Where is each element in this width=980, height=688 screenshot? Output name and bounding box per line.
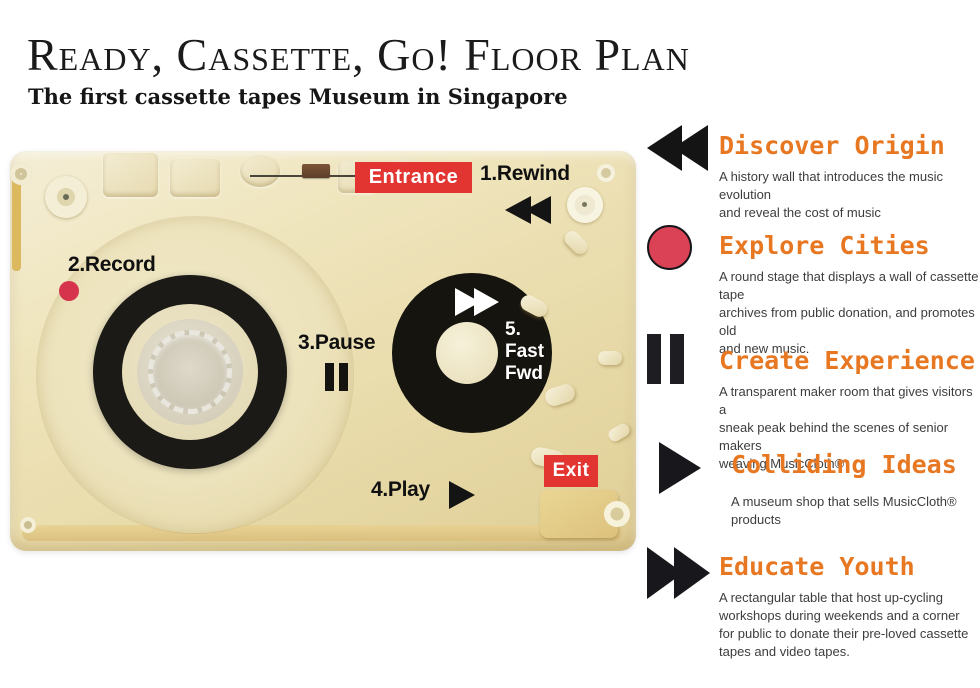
legend-item-title: Create Experience: [719, 346, 980, 375]
right-reel-hole: [436, 322, 498, 384]
legend-item-desc-line: A museum shop that sells MusicCloth® pro…: [731, 493, 980, 529]
legend-item-desc-line: tapes and video tapes.: [719, 643, 980, 661]
legend-item-desc-line: A rectangular table that host up-cycling: [719, 589, 980, 607]
record-label: 2.Record: [68, 253, 155, 277]
post-top-right-pin: [582, 202, 587, 207]
legend-item-desc-line: A round stage that displays a wall of ca…: [719, 268, 980, 304]
fast-forward-label-line1: Fast: [505, 341, 544, 363]
rewind-label: 1.Rewind: [480, 162, 570, 186]
pause-icon: [325, 363, 348, 391]
rewind-icon: [505, 196, 551, 224]
fast-forward-icon: [645, 547, 719, 661]
legend-item-discover-origin: Discover Origin A history wall that intr…: [645, 125, 980, 222]
cylinder-bottom-right: [604, 501, 630, 527]
poster: Ready, Cassette, Go! Floor Plan The firs…: [0, 0, 980, 688]
legend-item-colliding-ideas: Colliding Ideas A museum shop that sells…: [645, 442, 980, 529]
left-reel-hub-glass: [148, 330, 232, 414]
fast-forward-triangle: [674, 547, 710, 599]
left-reel: [93, 275, 287, 469]
rewind-icon: [645, 125, 719, 222]
legend-item-desc: A history wall that introduces the music…: [719, 168, 980, 222]
legend-item-desc: A rectangular table that host up-cycling…: [719, 589, 980, 661]
play-triangle: [659, 442, 701, 494]
molding-tab: [103, 153, 158, 197]
page-subtitle: The first cassette tapes Museum in Singa…: [28, 84, 568, 109]
legend-item-desc-line: for public to donate their pre-loved cas…: [719, 625, 980, 643]
legend: Discover Origin A history wall that intr…: [645, 120, 980, 688]
legend-item-educate-youth: Educate Youth A rectangular table that h…: [645, 547, 980, 661]
legend-item-desc: A museum shop that sells MusicCloth® pro…: [731, 493, 980, 529]
fast-forward-triangle: [474, 288, 499, 316]
entrance-label: Entrance: [355, 162, 472, 193]
legend-item-desc-line: A history wall that introduces the music…: [719, 168, 980, 204]
play-icon: [645, 442, 731, 529]
legend-item-title: Educate Youth: [719, 552, 980, 581]
tape-head: [302, 164, 330, 178]
fast-forward-label: 5. Fast Fwd: [505, 319, 544, 385]
rewind-triangle: [673, 125, 708, 171]
legend-item-title: Discover Origin: [719, 131, 980, 160]
fast-forward-icon: [455, 288, 499, 316]
play-label: 4.Play: [371, 478, 430, 502]
record-circle: [647, 225, 692, 270]
molding-tab: [170, 159, 220, 197]
page-title: Ready, Cassette, Go! Floor Plan: [27, 28, 690, 81]
cassette-left-edge: [12, 171, 21, 271]
screw-bottom-left: [20, 517, 36, 533]
legend-item-desc-line: A transparent maker room that gives visi…: [719, 383, 980, 419]
molded-pill: [598, 351, 622, 365]
fast-forward-label-line2: Fwd: [505, 363, 544, 385]
legend-item-desc-line: workshops during weekends and a corner: [719, 607, 980, 625]
legend-item-title: Colliding Ideas: [731, 450, 980, 479]
play-icon: [449, 481, 475, 509]
legend-item-desc-line: and reveal the cost of music: [719, 204, 980, 222]
screw-top-left-pin: [63, 194, 69, 200]
legend-item-title: Explore Cities: [719, 231, 980, 260]
cassette-floorplan-photo: Entrance 1.Rewind 2.Record 3.Pause 4.Pla…: [8, 143, 642, 561]
fast-forward-label-num: 5.: [505, 319, 544, 341]
exit-label: Exit: [544, 455, 598, 487]
left-reel-hub: [137, 319, 243, 425]
record-icon: [59, 281, 79, 301]
left-reel-ring: [122, 304, 258, 440]
rewind-triangle: [525, 196, 551, 224]
ring-top-right: [597, 164, 615, 182]
hook-top-left: [10, 163, 32, 185]
cassette-bottom-edge: [22, 525, 622, 541]
pause-label: 3.Pause: [298, 331, 375, 355]
molding-oval: [240, 155, 280, 187]
